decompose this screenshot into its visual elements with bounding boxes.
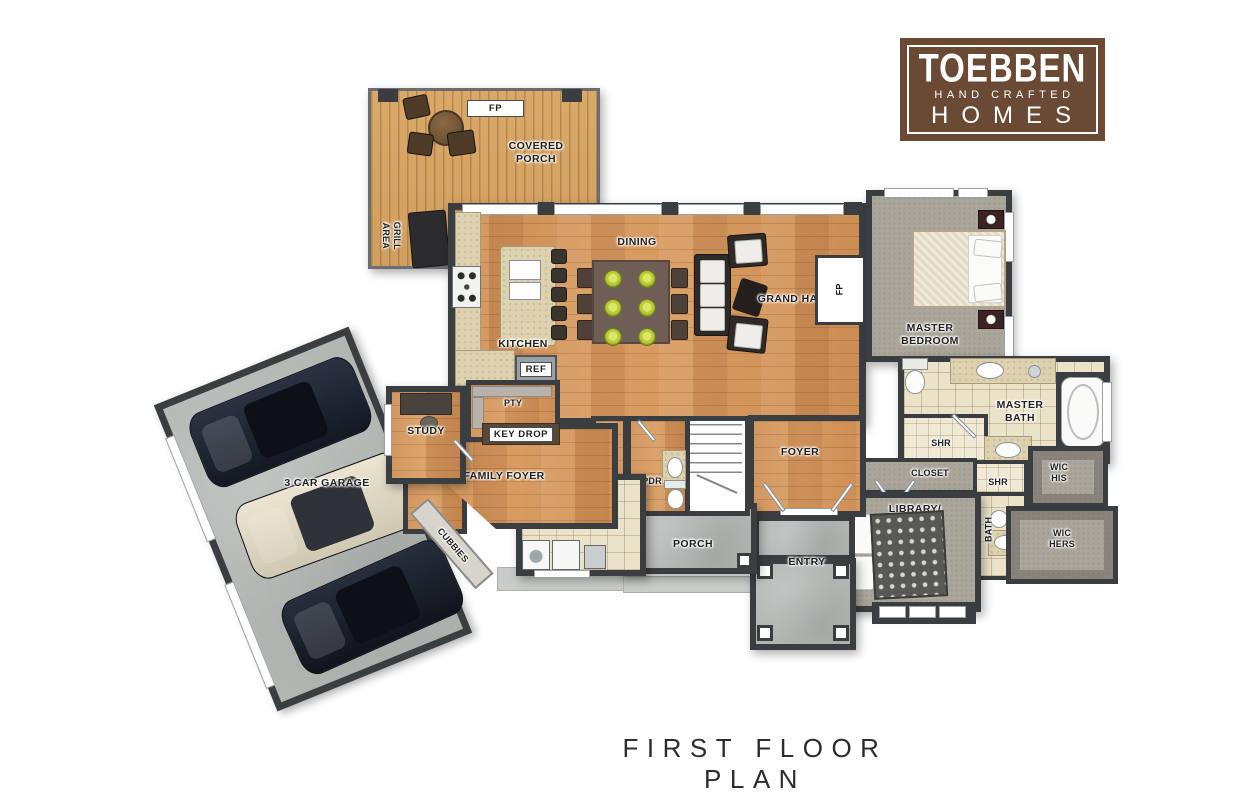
stair-treads xyxy=(688,424,742,480)
label-dining: DINING xyxy=(605,236,669,249)
library-bed xyxy=(870,510,948,600)
bar-stool xyxy=(551,249,567,264)
label-shr-master: SHR xyxy=(921,438,961,449)
floor-plan: FP GRILL AREA 3 CAR GARAGE REF KITC xyxy=(0,0,1260,810)
toilet xyxy=(664,480,686,489)
bar-stool xyxy=(551,287,567,302)
place-setting xyxy=(638,299,656,317)
stove xyxy=(452,266,481,308)
car-shine xyxy=(246,505,299,565)
wall-post xyxy=(744,202,760,215)
patio-chair xyxy=(407,131,435,156)
island-sink xyxy=(509,260,541,280)
label-kitchen: KITCHEN xyxy=(490,338,556,351)
label-pty: PTY xyxy=(496,398,530,409)
window xyxy=(678,204,744,215)
window xyxy=(909,606,936,618)
sofa-cushion xyxy=(700,308,725,331)
column xyxy=(833,563,849,579)
fireplace-hall-tag: FP xyxy=(835,276,846,302)
dining-chair xyxy=(671,320,688,340)
place-setting xyxy=(604,328,622,346)
grill xyxy=(408,209,451,268)
bar-stool xyxy=(551,268,567,283)
fireplace-porch-tag: FP xyxy=(467,100,524,117)
armchair xyxy=(726,315,768,354)
window xyxy=(879,606,906,618)
logo-tagline: HAND CRAFTED xyxy=(930,89,1074,101)
car-shine xyxy=(292,600,347,661)
dryer xyxy=(552,540,580,570)
armchair xyxy=(727,233,768,269)
pdr-sink xyxy=(667,457,683,478)
place-setting xyxy=(604,270,622,288)
master-bed xyxy=(912,230,1006,308)
garage-door xyxy=(224,581,275,689)
bar-stool xyxy=(551,306,567,321)
porch-apron xyxy=(623,576,753,593)
nook-sink xyxy=(995,442,1021,458)
room-entry xyxy=(753,515,855,561)
bath-sink xyxy=(976,362,1004,379)
label-foyer: FOYER xyxy=(770,446,830,459)
bed-pillow xyxy=(973,283,1003,303)
label-master-bedroom: MASTER BEDROOM xyxy=(890,322,970,347)
nightstand xyxy=(978,310,1004,329)
sofa-cushion xyxy=(700,260,725,283)
laundry-sink xyxy=(584,545,606,569)
logo-frame: TOEBBEN HAND CRAFTED HOMES xyxy=(907,45,1098,134)
column xyxy=(737,553,752,568)
tub-basin xyxy=(1067,384,1099,440)
patio-chair xyxy=(446,129,476,157)
sofa-cushion xyxy=(700,284,725,307)
label-closet-hall: CLOSET xyxy=(907,468,953,479)
column xyxy=(757,563,773,579)
label-family-foyer: FAMILY FOYER xyxy=(452,470,556,483)
label-porch: PORCH xyxy=(660,538,726,551)
sofa xyxy=(694,254,731,336)
stairs xyxy=(680,416,750,516)
toilet xyxy=(902,358,928,370)
column xyxy=(833,625,849,641)
car-shine xyxy=(200,413,254,474)
label-grill-area: GRILL AREA xyxy=(380,214,402,258)
washer xyxy=(522,540,550,570)
island-sink xyxy=(509,282,541,300)
column xyxy=(757,625,773,641)
place-setting xyxy=(638,270,656,288)
logo: TOEBBEN HAND CRAFTED HOMES xyxy=(900,38,1105,141)
logo-brand: TOEBBEN xyxy=(919,47,1087,87)
label-bath: BATH xyxy=(984,504,995,554)
porch-post xyxy=(378,89,398,102)
porch-post xyxy=(562,89,582,102)
bath-accessory xyxy=(1028,365,1041,378)
window xyxy=(1004,316,1014,360)
key-drop-tag: KEY DROP xyxy=(489,427,553,442)
wall-post xyxy=(662,202,678,215)
label-garage: 3 CAR GARAGE xyxy=(262,477,392,490)
plan-title: FIRST FLOOR PLAN xyxy=(590,733,920,795)
label-study: STUDY xyxy=(398,425,454,438)
nightstand xyxy=(978,210,1004,229)
bed-pillow xyxy=(973,239,1003,259)
label-wic-his: WIC HIS xyxy=(1042,462,1076,484)
label-wic-hers: WIC HERS xyxy=(1042,528,1082,550)
window xyxy=(958,188,988,198)
window xyxy=(884,188,954,198)
window xyxy=(534,570,590,578)
label-covered-porch: COVERED PORCH xyxy=(501,140,571,165)
pantry-shelf xyxy=(472,386,552,397)
place-setting xyxy=(604,299,622,317)
toilet-bowl xyxy=(905,370,925,394)
desk xyxy=(400,393,452,415)
wall-post xyxy=(538,202,554,215)
car-glass xyxy=(242,380,330,460)
bathtub xyxy=(1061,377,1105,447)
armchair-cushion xyxy=(734,239,763,264)
toilet-bowl xyxy=(667,489,684,509)
window xyxy=(384,404,392,456)
window xyxy=(760,204,844,215)
window xyxy=(1102,382,1112,442)
armchair-cushion xyxy=(734,323,763,350)
window xyxy=(939,606,966,618)
dining-chair xyxy=(671,294,688,314)
label-entry: ENTRY xyxy=(782,556,832,569)
label-shr-hall: SHR xyxy=(978,477,1018,488)
label-master-bath: MASTER BATH xyxy=(988,399,1052,424)
car-glass xyxy=(334,564,423,646)
wall-post xyxy=(844,202,862,215)
window xyxy=(554,204,662,215)
room-foyer xyxy=(748,415,866,517)
logo-word: HOMES xyxy=(921,104,1084,128)
refrigerator-tag: REF xyxy=(520,362,552,377)
dining-chair xyxy=(671,268,688,288)
place-setting xyxy=(638,328,656,346)
dining-table xyxy=(592,260,670,344)
